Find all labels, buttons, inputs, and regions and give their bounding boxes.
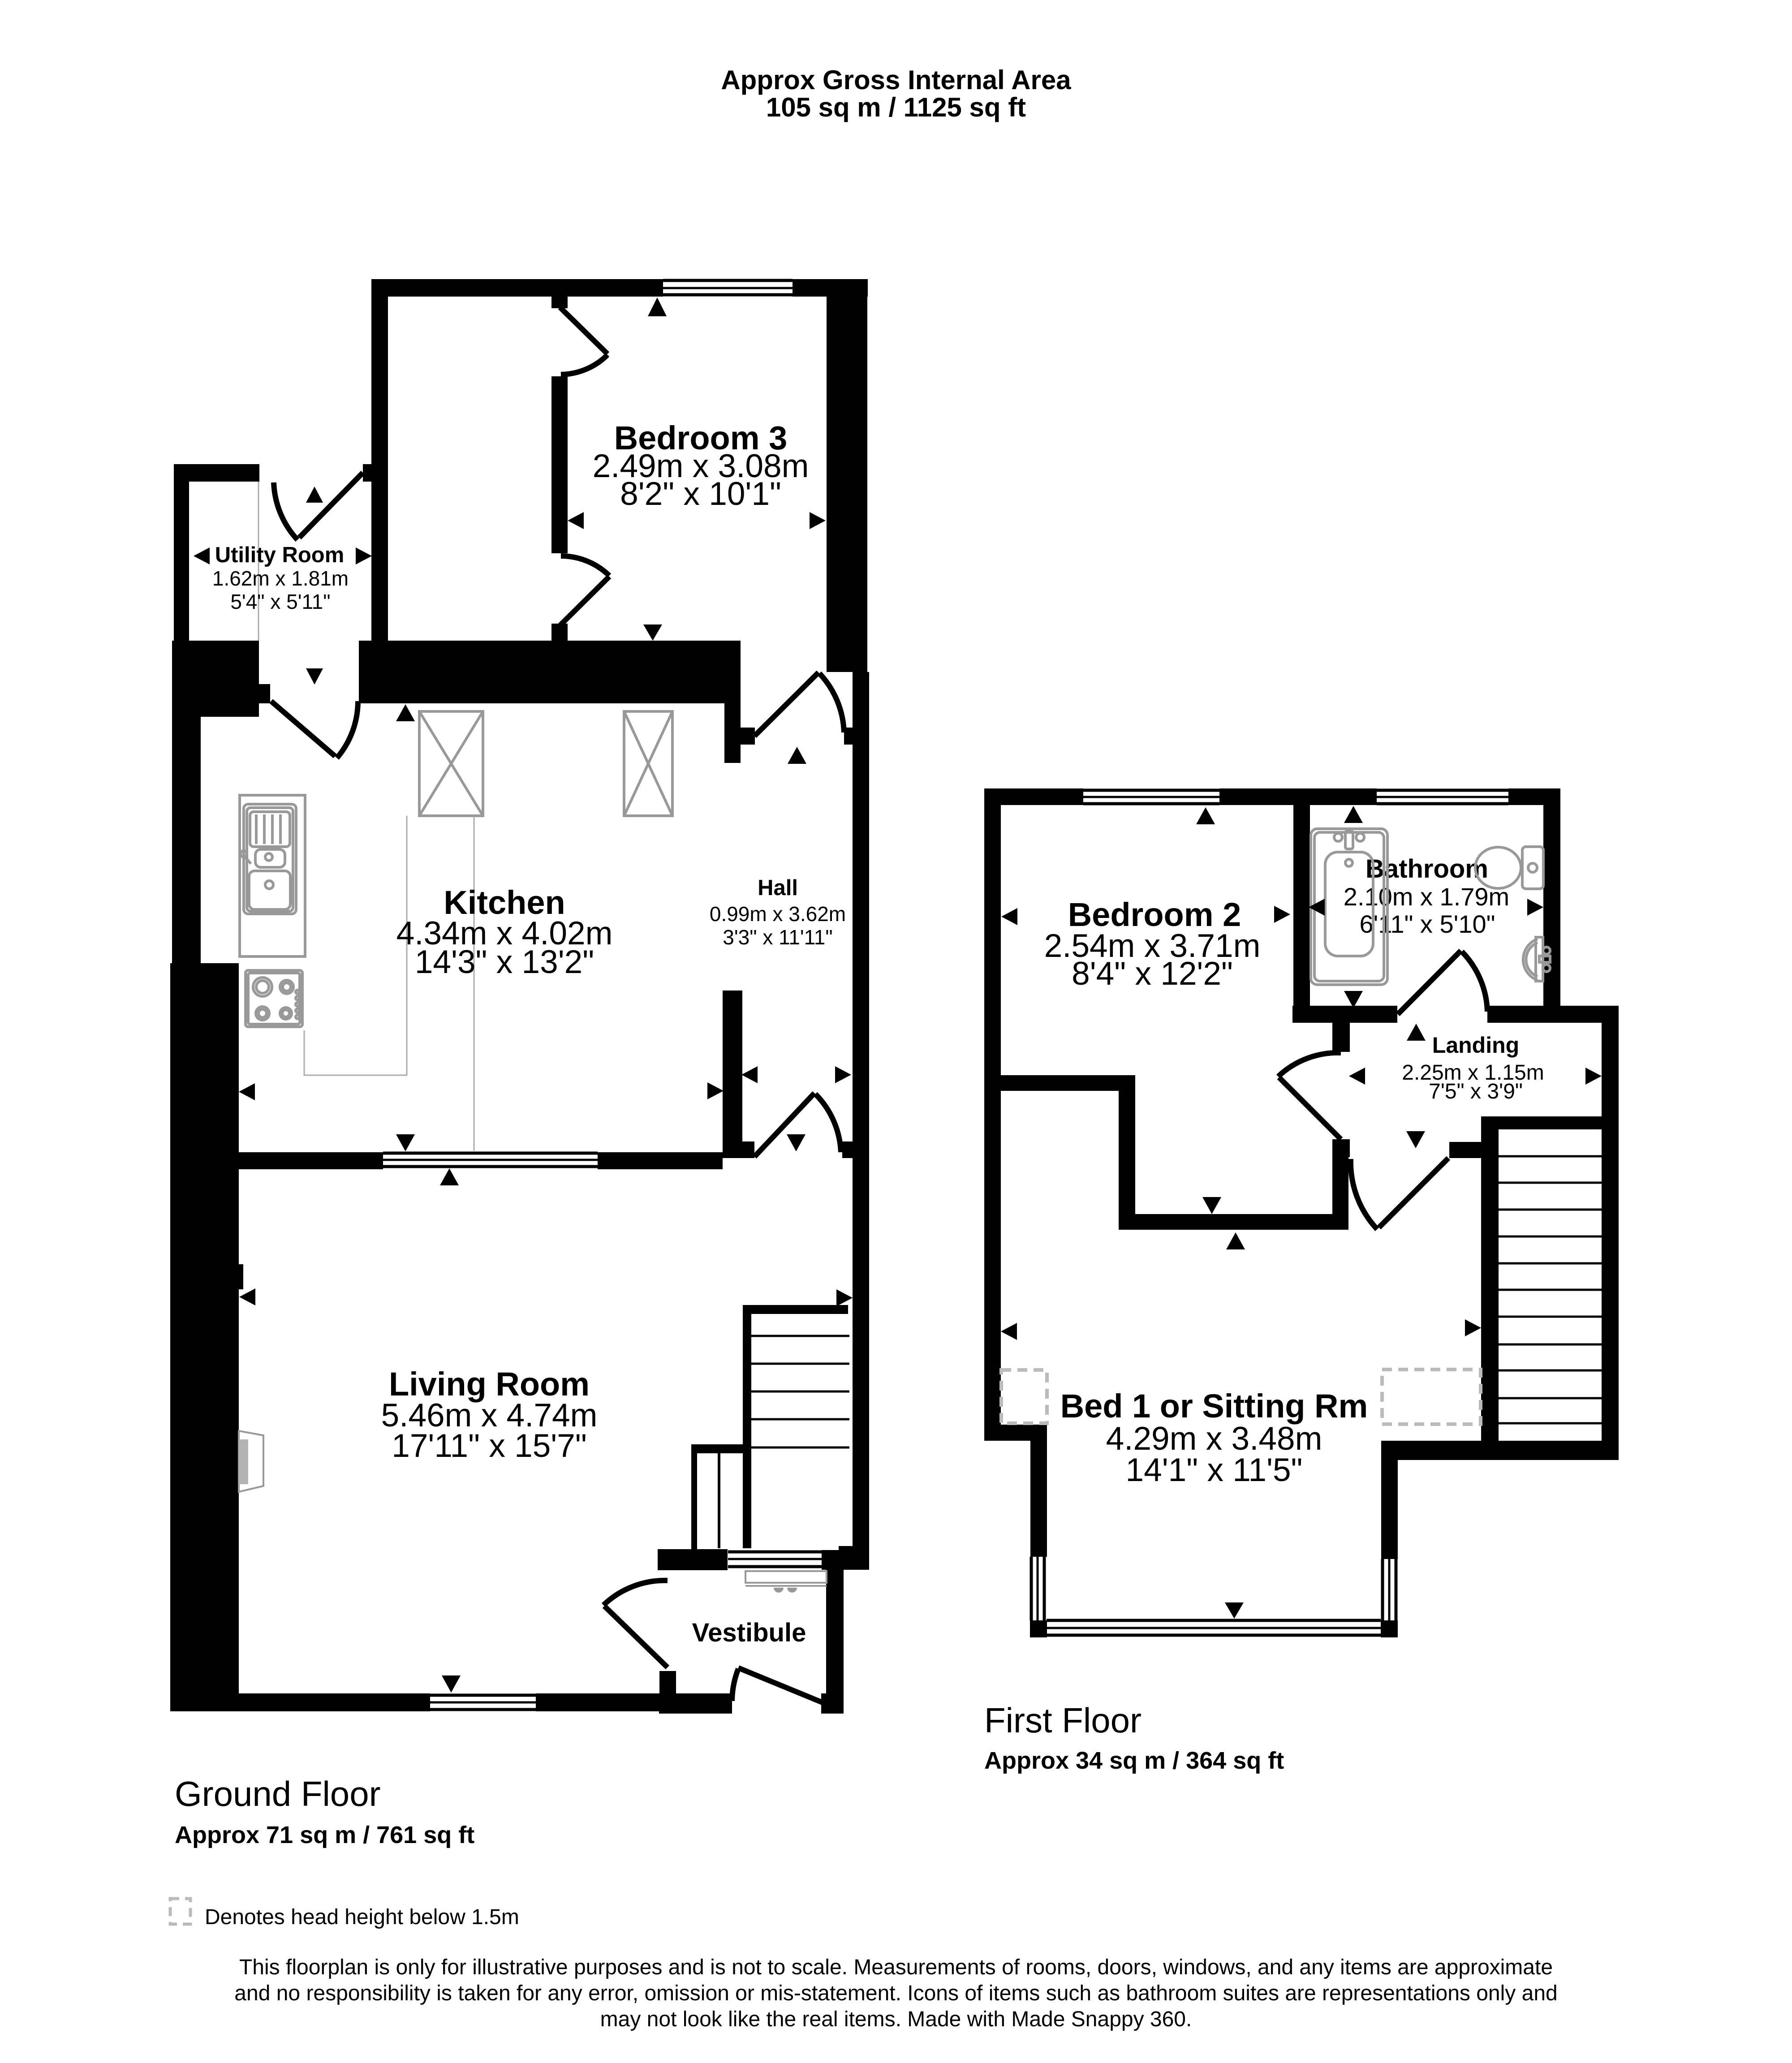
svg-text:17'11" x 15'7": 17'11" x 15'7" (392, 1428, 587, 1464)
svg-text:6'11" x 5'10": 6'11" x 5'10" (1360, 910, 1495, 938)
svg-text:Approx 34 sq m / 364 sq ft: Approx 34 sq m / 364 sq ft (984, 1747, 1284, 1774)
svg-text:and no responsibility is taken: and no responsibility is taken for any e… (234, 1981, 1557, 2005)
svg-text:2.10m x 1.79m: 2.10m x 1.79m (1344, 883, 1509, 911)
svg-text:105 sq m / 1125 sq ft: 105 sq m / 1125 sq ft (766, 92, 1026, 122)
svg-text:Landing: Landing (1432, 1033, 1519, 1058)
svg-text:3'3" x 11'11": 3'3" x 11'11" (723, 926, 832, 949)
svg-text:Hall: Hall (758, 876, 798, 900)
svg-text:Approx Gross Internal Area: Approx Gross Internal Area (721, 65, 1071, 95)
svg-text:1.62m x 1.81m: 1.62m x 1.81m (212, 567, 349, 590)
svg-text:Denotes head height below 1.5m: Denotes head height below 1.5m (205, 1905, 519, 1929)
svg-text:8'4" x 12'2": 8'4" x 12'2" (1072, 956, 1233, 992)
svg-text:Vestibule: Vestibule (692, 1618, 806, 1647)
svg-text:Approx 71 sq m / 761 sq ft: Approx 71 sq m / 761 sq ft (175, 1822, 474, 1848)
svg-text:4.29m x 3.48m: 4.29m x 3.48m (1106, 1421, 1322, 1457)
svg-text:0.99m x 3.62m: 0.99m x 3.62m (710, 902, 846, 926)
svg-text:7'5" x 3'9": 7'5" x 3'9" (1429, 1080, 1523, 1103)
svg-text:This floorplan is only for ill: This floorplan is only for illustrative … (239, 1955, 1553, 1979)
svg-text:First Floor: First Floor (984, 1701, 1142, 1740)
svg-text:14'3" x 13'2": 14'3" x 13'2" (415, 944, 594, 980)
svg-text:may not look like the real ite: may not look like the real items. Made w… (600, 2007, 1192, 2031)
svg-text:8'2" x 10'1": 8'2" x 10'1" (620, 476, 781, 512)
svg-text:5'4" x 5'11": 5'4" x 5'11" (230, 590, 330, 613)
svg-text:Utility Room: Utility Room (215, 543, 345, 567)
svg-text:Bed 1 or Sitting Rm: Bed 1 or Sitting Rm (1060, 1387, 1368, 1425)
svg-text:Ground Floor: Ground Floor (175, 1774, 381, 1813)
svg-text:14'1" x 11'5": 14'1" x 11'5" (1126, 1452, 1303, 1488)
